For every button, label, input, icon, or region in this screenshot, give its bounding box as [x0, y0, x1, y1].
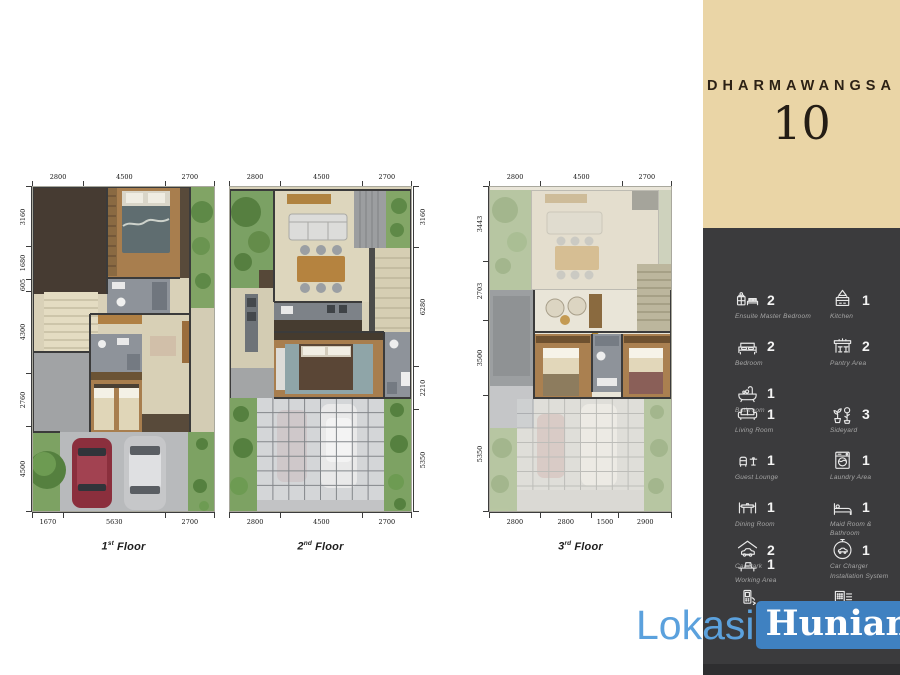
- legend-label: Car Charger Installation System: [830, 562, 900, 582]
- legend-label: Ensuite Master Bedroom: [735, 312, 823, 322]
- dimension: 2800: [229, 512, 280, 518]
- legend-count: 1: [862, 292, 870, 308]
- ev-charger-icon: [830, 538, 855, 561]
- legend-count: 2: [767, 542, 775, 558]
- floor-2-right-dimensions: 3160 6280 2210 5350: [412, 186, 424, 512]
- legend-item: 2 Car Park: [735, 538, 823, 582]
- armchair-icon: [735, 449, 760, 472]
- dimension: 4500: [280, 512, 362, 518]
- floor-plan-1: 2800 4500 2700 3160 1680 605 4300 2760 4…: [20, 174, 216, 574]
- legend-section-rooms: 2 Ensuite Master Bedroom 1 Kitchen 2 Bed…: [735, 288, 900, 415]
- legend-count: 1: [767, 385, 775, 401]
- legend-count: 1: [862, 542, 870, 558]
- floor-plan-2: 2800 4500 2700: [229, 174, 425, 574]
- kitchen-icon: [830, 288, 855, 311]
- floor-3-left-dimensions: 3443 2703 3500 5350: [477, 186, 489, 512]
- panel-bottom-strip: [703, 664, 900, 675]
- floor-3-top-dimensions: 2800 4500 2700: [489, 174, 672, 186]
- project-name: DHARMAWANGSA: [703, 0, 900, 94]
- legend-label: Guest Lounge: [735, 473, 823, 483]
- dimension: 2900: [618, 512, 672, 518]
- legend-count: 3: [862, 406, 870, 422]
- legend-item: 1 Maid Room & Bathroom: [830, 496, 900, 540]
- floor-1-left-dimensions: 3160 1680 605 4300 2760 4500: [20, 186, 32, 512]
- sidebar: DHARMAWANGSA 10 2 Ensuite Master Bedroom…: [703, 0, 900, 675]
- floor-3-label: 3rdFloor: [489, 540, 672, 553]
- dimension: 5350: [413, 409, 419, 512]
- dimension: 2700: [362, 512, 412, 518]
- legend-label: Bedroom: [735, 359, 823, 369]
- floor-3-bottom-dimensions: 2800 2800 1500 2900: [489, 512, 672, 524]
- single-bed-icon: [830, 496, 855, 519]
- ensuite-master-bedroom-icon: [735, 288, 760, 311]
- legend-count: 1: [862, 452, 870, 468]
- legend-label: Sideyard: [830, 426, 900, 436]
- sofa-icon: [735, 402, 760, 425]
- floor-3-drawing: [489, 186, 672, 512]
- legend-label: Pantry Area: [830, 359, 900, 369]
- legend-label: Laundry Area: [830, 473, 900, 483]
- legend-count: 1: [767, 452, 775, 468]
- bed-icon: [735, 335, 760, 358]
- unit-number: 10: [703, 100, 900, 146]
- carport-icon: [735, 538, 760, 561]
- watermark: Lokasi Hunian: [636, 601, 900, 649]
- dimension: 2210: [413, 366, 419, 409]
- legend-item: 1 Living Room: [735, 402, 823, 436]
- legend-section-parking: 2 Car Park 1 Car Charger Installation Sy…: [735, 538, 900, 582]
- dimension: 2700: [165, 512, 215, 518]
- legend-item: 1 Car Charger Installation System: [830, 538, 900, 582]
- legend-item: 1 Dining Room: [735, 496, 823, 540]
- dimension: 2800: [540, 512, 591, 518]
- dimension: 1500: [591, 512, 619, 518]
- legend-item: 1 Laundry Area: [830, 449, 900, 483]
- brochure-page: 2800 4500 2700 3160 1680 605 4300 2760 4…: [0, 0, 900, 675]
- floor-2-label: 2ndFloor: [229, 540, 412, 553]
- dimension: 6280: [413, 247, 419, 367]
- legend-item: 1 Guest Lounge: [735, 449, 823, 483]
- watermark-text-hunian: Hunian: [756, 601, 900, 649]
- legend-item: 3 Sideyard: [830, 402, 900, 436]
- dimension: 3160: [413, 186, 419, 247]
- legend-label: Dining Room: [735, 520, 823, 530]
- floor-plan-3: 2800 4500 2700 3443 2703 3500 5350: [477, 174, 673, 574]
- legend-label: Living Room: [735, 426, 823, 436]
- pantry-icon: [830, 335, 855, 358]
- legend-label: Maid Room & Bathroom: [830, 520, 900, 540]
- legend-item: 2 Pantry Area: [830, 335, 900, 369]
- floor-1-top-dimensions: 2800 4500 2700: [32, 174, 215, 186]
- legend-count: 2: [862, 338, 870, 354]
- washing-machine-icon: [830, 449, 855, 472]
- legend-count: 2: [767, 292, 775, 308]
- plants-icon: [830, 402, 855, 425]
- floor-2-bottom-dimensions: 2800 4500 2700: [229, 512, 412, 524]
- dining-table-icon: [735, 496, 760, 519]
- dimension: 5630: [63, 512, 165, 518]
- floor-1-label: 1stFloor: [32, 540, 215, 553]
- legend-label: Car Park: [735, 562, 823, 572]
- floor-1-drawing: [32, 186, 215, 512]
- legend-label: Kitchen: [830, 312, 900, 322]
- legend-item: 2 Bedroom: [735, 335, 823, 369]
- floor-2-drawing: [229, 186, 412, 512]
- legend-count: 1: [767, 406, 775, 422]
- legend-count: 2: [767, 338, 775, 354]
- legend-count: 1: [767, 499, 775, 515]
- legend-count: 1: [862, 499, 870, 515]
- floor-1-bottom-dimensions: 1670 5630 2700: [32, 512, 215, 524]
- dimension: 2800: [489, 512, 540, 518]
- dimension: 1670: [32, 512, 63, 518]
- legend-item: 1 Kitchen: [830, 288, 900, 322]
- project-header: DHARMAWANGSA 10: [703, 0, 900, 228]
- floor-2-top-dimensions: 2800 4500 2700: [229, 174, 412, 186]
- legend-item: 2 Ensuite Master Bedroom: [735, 288, 823, 322]
- watermark-text-lokasi: Lokasi: [636, 602, 755, 649]
